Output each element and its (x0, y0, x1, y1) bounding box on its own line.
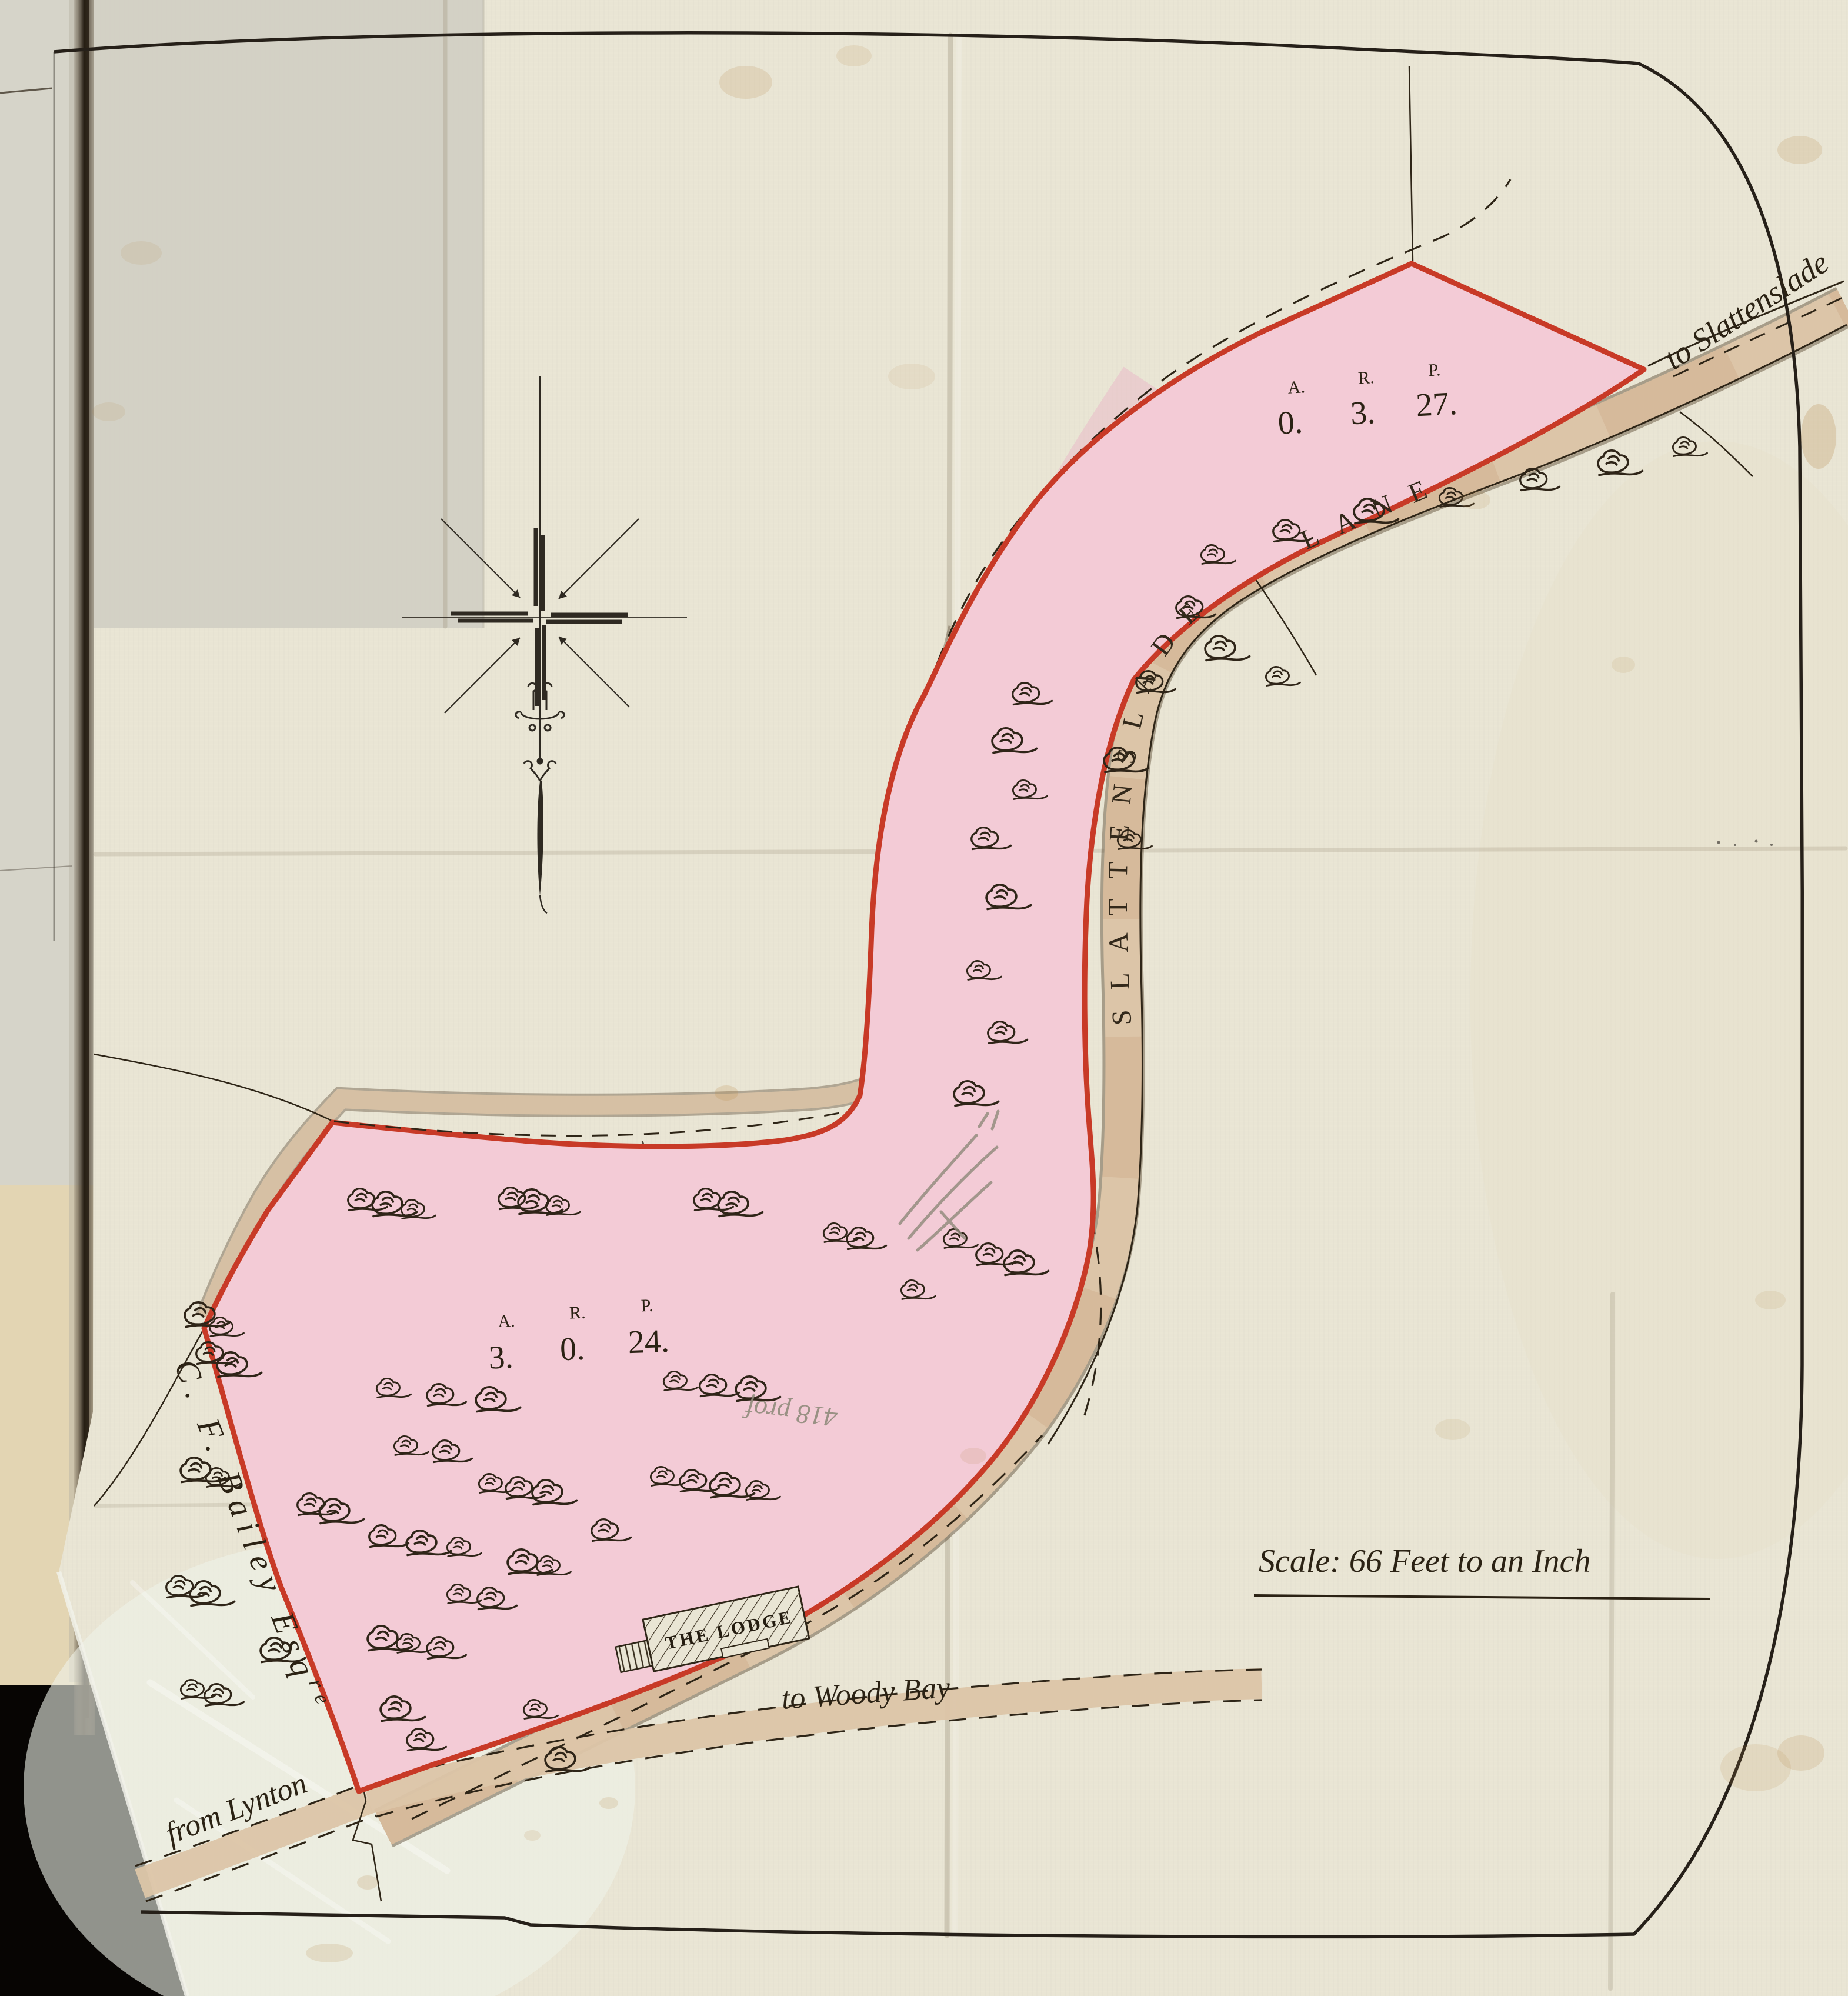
unit-a: A. (1287, 377, 1306, 397)
photographed-estate-plan: THE LODGE (0, 0, 1848, 1996)
perches-value: 24. (628, 1323, 670, 1361)
acres-value: 3. (488, 1339, 513, 1376)
roods-value: 3. (1350, 394, 1376, 432)
acres-value: 0. (1277, 404, 1303, 442)
unit-r: R. (1357, 368, 1375, 388)
scale-text: Scale: 66 Feet to an Inch (1259, 1543, 1590, 1580)
unit-p: P. (1428, 360, 1442, 380)
perches-value: 27. (1415, 385, 1458, 424)
unit-p: P. (641, 1296, 653, 1316)
roods-value: 0. (559, 1331, 585, 1368)
unit-r: R. (569, 1303, 586, 1323)
grey-discoloration-patch (94, 0, 483, 628)
unit-a: A. (498, 1311, 515, 1331)
